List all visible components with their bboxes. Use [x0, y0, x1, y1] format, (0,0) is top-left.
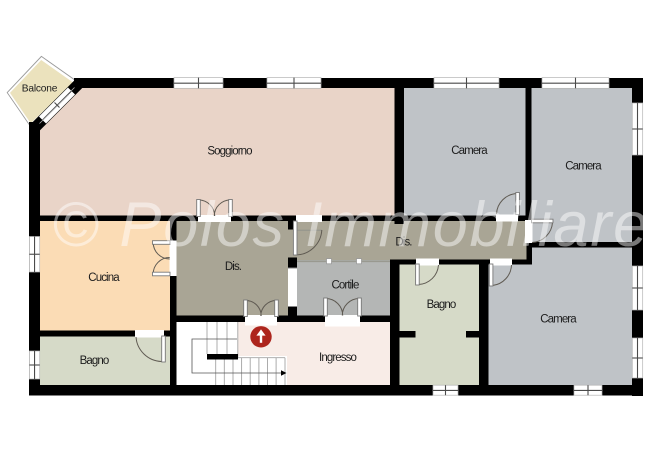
svg-text:Camera: Camera: [451, 145, 488, 157]
svg-text:Bagno: Bagno: [427, 299, 456, 311]
svg-text:Cortile: Cortile: [332, 280, 359, 292]
svg-text:Camera: Camera: [565, 161, 602, 173]
svg-text:© Polos Immobiliare: © Polos Immobiliare: [52, 190, 650, 260]
svg-text:Ingresso: Ingresso: [319, 352, 356, 364]
svg-text:Balcone: Balcone: [22, 84, 58, 95]
svg-text:Soggiorno: Soggiorno: [207, 145, 252, 157]
svg-text:Bagno: Bagno: [80, 355, 109, 367]
svg-text:Camera: Camera: [540, 314, 577, 326]
svg-text:Cucina: Cucina: [88, 272, 120, 284]
svg-text:Dis.: Dis.: [225, 261, 242, 273]
